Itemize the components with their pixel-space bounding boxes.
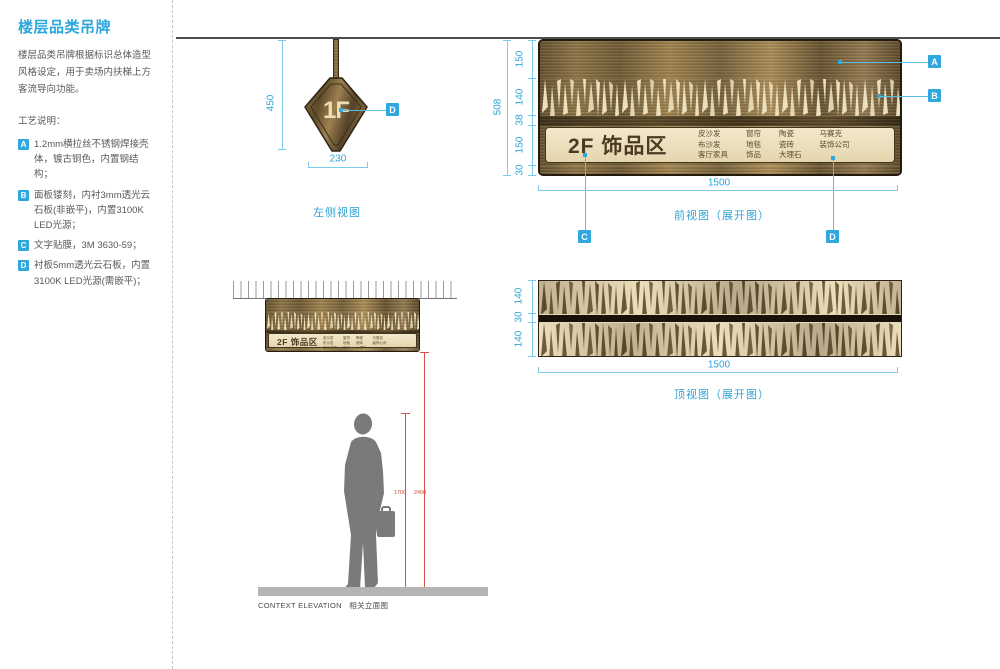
front-width-label: 1500 xyxy=(706,178,732,189)
floor-bar xyxy=(258,587,488,596)
category-item: 地毯 xyxy=(746,140,761,151)
side-view-height-label: 450 xyxy=(266,95,277,112)
note-a-badge: A xyxy=(18,139,29,150)
category-item: 窗帘 xyxy=(746,129,761,140)
red-cap xyxy=(420,352,429,353)
callout-d2-badge: D xyxy=(826,230,839,243)
dim-tick xyxy=(528,313,536,314)
sign-height-label: 2400 xyxy=(414,489,426,495)
category-item: 皮沙发 xyxy=(698,129,728,140)
category-item: 瓷砖 xyxy=(779,140,802,151)
category-column-1: 皮沙发 布沙发 客厅家具 xyxy=(698,129,728,162)
front-seg-label-140: 140 xyxy=(515,89,526,106)
callout-d2-leader xyxy=(833,160,834,230)
context-caption-en: CONTEXT ELEVATION xyxy=(258,601,342,610)
note-b-badge: B xyxy=(18,190,29,201)
context-caption-zh: 相关立面图 xyxy=(349,601,388,610)
category-item: 客厅家具 xyxy=(698,150,728,161)
side-view-width-dimension-line xyxy=(308,167,368,168)
top-width-label: 1500 xyxy=(706,360,732,371)
dim-tick xyxy=(528,165,536,166)
top-view-caption: 顶视图（展开图） xyxy=(674,386,770,402)
front-divider-band xyxy=(540,116,900,126)
page-description: 楼层品类吊牌根据标识总体造型风格设定，用于卖场内扶梯上方客流导向功能。 xyxy=(18,47,151,98)
callout-c-badge: C xyxy=(578,230,591,243)
dim-tick xyxy=(528,356,536,357)
category-item: 饰品 xyxy=(746,150,761,161)
callout-a-badge: A xyxy=(928,55,941,68)
context-sign-title: 2F 饰品区 xyxy=(277,336,318,348)
note-d-text: 衬板5mm透光云石板，内置3100K LED光源(需嵌平)； xyxy=(34,258,156,288)
sidebar: 楼层品类吊牌 楼层品类吊牌根据标识总体造型风格设定，用于卖场内扶梯上方客流导向功… xyxy=(0,0,165,669)
front-seg-label-150a: 150 xyxy=(515,51,526,68)
process-note-c: C 文字贴膜，3M 3630-59； xyxy=(18,238,156,253)
context-pattern-band xyxy=(266,312,419,330)
top-seg-label-140b: 140 xyxy=(514,331,525,348)
process-note-a: A 1.2mm横拉丝不锈钢焊接壳体，镀古铜色，内置钢结构； xyxy=(18,137,156,183)
dim-tick xyxy=(528,115,536,116)
page-title: 楼层品类吊牌 xyxy=(18,16,111,37)
callout-b-badge: B xyxy=(928,89,941,102)
context-text-panel: 2F 饰品区 皮沙发 布沙发 客厅家具 窗帘 地毯 饰品 陶瓷 瓷砖 xyxy=(268,333,417,348)
top-center-strip xyxy=(539,314,901,323)
side-view-width-label: 230 xyxy=(328,154,349,165)
dim-tick xyxy=(528,40,536,41)
front-segment-chain-line xyxy=(532,40,533,176)
front-total-height-label: 508 xyxy=(493,99,504,116)
category-item: 大理石 xyxy=(779,150,802,161)
diamond-sign-text: 1F xyxy=(304,97,368,125)
sign-height-line-2400 xyxy=(424,352,425,588)
dim-tick xyxy=(528,280,536,281)
category-item: 装饰公司 xyxy=(820,140,850,151)
dim-tick xyxy=(503,175,511,176)
front-panel-band: 2F 饰品区 皮沙发 布沙发 客厅家具 窗帘 地毯 饰品 陶瓷 瓷砖 xyxy=(540,126,900,166)
process-note-b: B 面板镂刻，内衬3mm透光云石板(非嵌平)，内置3100K LED光源； xyxy=(18,188,156,234)
front-seg-label-150b: 150 xyxy=(515,137,526,154)
top-segment-chain-line xyxy=(532,280,533,357)
top-seg-label-140a: 140 xyxy=(514,288,525,305)
person-height-line-1700 xyxy=(405,413,406,588)
dim-tick xyxy=(897,367,898,373)
dim-tick xyxy=(538,185,539,191)
dim-tick xyxy=(367,162,368,168)
note-d-badge: D xyxy=(18,260,29,271)
front-seg-label-38: 38 xyxy=(515,114,526,125)
side-view-caption: 左侧视图 xyxy=(313,204,361,220)
note-c-text: 文字贴膜，3M 3630-59； xyxy=(34,238,142,253)
dim-tick xyxy=(278,40,286,41)
dim-tick xyxy=(528,322,536,323)
top-seg-label-30: 30 xyxy=(514,311,525,322)
top-view-sign xyxy=(538,280,902,357)
front-total-height-line xyxy=(507,40,508,176)
note-b-text: 面板镂刻，内衬3mm透光云石板(非嵌平)，内置3100K LED光源； xyxy=(34,188,156,234)
context-bottom-band xyxy=(266,349,419,351)
dim-tick xyxy=(538,367,539,373)
front-bottom-band xyxy=(540,166,900,174)
front-width-dimension-line xyxy=(538,190,898,191)
side-view-height-dimension-line xyxy=(282,40,283,150)
front-text-panel: 2F 饰品区 皮沙发 布沙发 客厅家具 窗帘 地毯 饰品 陶瓷 瓷砖 xyxy=(545,127,895,163)
front-seg-label-30: 30 xyxy=(515,164,526,175)
front-category-list: 皮沙发 布沙发 客厅家具 窗帘 地毯 饰品 陶瓷 瓷砖 大理石 xyxy=(698,129,850,162)
front-sign-title: 2F 饰品区 xyxy=(546,130,690,160)
hanging-rod xyxy=(333,39,339,81)
dim-tick xyxy=(528,78,536,79)
top-pattern-band-1 xyxy=(539,281,901,314)
category-item: 装饰公司 xyxy=(373,341,387,346)
context-caption: CONTEXT ELEVATION 相关立面图 xyxy=(258,600,388,611)
front-top-band xyxy=(540,41,900,79)
callout-c-leader xyxy=(585,157,586,230)
front-view-caption: 前视图（展开图） xyxy=(674,207,770,223)
context-sign: 2F 饰品区 皮沙发 布沙发 客厅家具 窗帘 地毯 饰品 陶瓷 瓷砖 xyxy=(265,298,420,352)
category-item: 陶瓷 xyxy=(779,129,802,140)
dim-tick xyxy=(503,40,511,41)
callout-d-leader xyxy=(342,110,386,111)
process-note-d: D 衬板5mm透光云石板，内置3100K LED光源(需嵌平)； xyxy=(18,258,156,288)
process-heading: 工艺说明： xyxy=(18,113,66,127)
context-top-band xyxy=(266,299,419,312)
top-pattern-band-2 xyxy=(539,323,901,356)
dim-tick xyxy=(528,125,536,126)
dim-tick xyxy=(278,149,286,150)
category-item: 马赛克 xyxy=(820,129,850,140)
dim-tick xyxy=(308,162,309,168)
note-c-badge: C xyxy=(18,240,29,251)
ceiling-hatch xyxy=(233,281,457,299)
front-pattern-band xyxy=(540,79,900,116)
dim-tick xyxy=(528,175,536,176)
category-item: 布沙发 xyxy=(698,140,728,151)
front-view-sign: 2F 饰品区 皮沙发 布沙发 客厅家具 窗帘 地毯 饰品 陶瓷 瓷砖 xyxy=(538,39,902,176)
top-width-dimension-line xyxy=(538,372,898,373)
process-notes: A 1.2mm横拉丝不锈钢焊接壳体，镀古铜色，内置钢结构； B 面板镂刻，内衬3… xyxy=(18,137,156,294)
spec-sheet-page: 楼层品类吊牌 楼层品类吊牌根据标识总体造型风格设定，用于卖场内扶梯上方客流导向功… xyxy=(0,0,1000,669)
context-panel-band: 2F 饰品区 皮沙发 布沙发 客厅家具 窗帘 地毯 饰品 陶瓷 瓷砖 xyxy=(266,333,419,349)
person-silhouette xyxy=(330,413,398,595)
note-a-text: 1.2mm横拉丝不锈钢焊接壳体，镀古铜色，内置钢结构； xyxy=(34,137,156,183)
sidebar-divider xyxy=(172,0,173,669)
callout-d-badge: D xyxy=(386,103,399,116)
dim-tick xyxy=(897,185,898,191)
category-column-2: 窗帘 地毯 饰品 xyxy=(746,129,761,162)
red-cap xyxy=(401,413,410,414)
callout-a-leader xyxy=(841,62,928,63)
callout-b-leader xyxy=(880,96,928,97)
category-column-3: 陶瓷 瓷砖 大理石 xyxy=(779,129,802,162)
